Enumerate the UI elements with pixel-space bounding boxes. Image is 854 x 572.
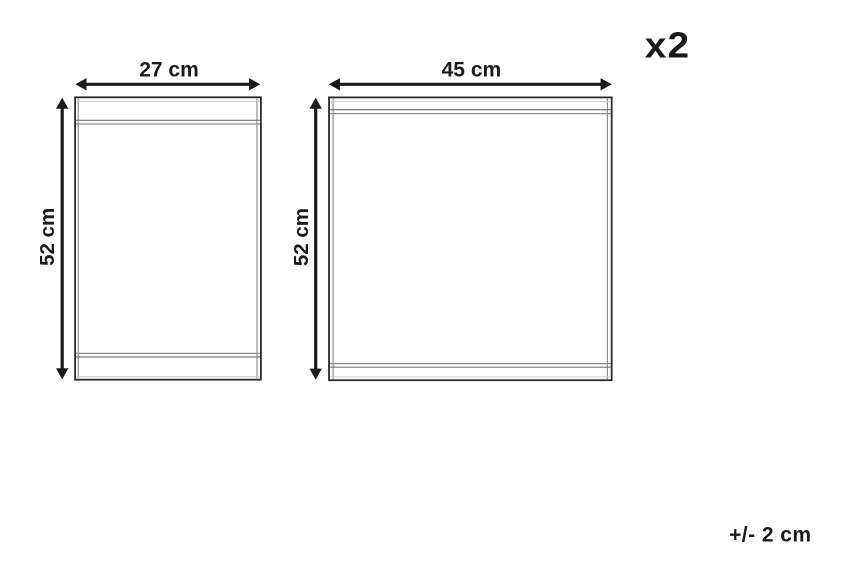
svg-text:52 cm: 52 cm: [290, 208, 313, 266]
svg-text:x2: x2: [645, 25, 690, 66]
svg-text:45 cm: 45 cm: [442, 58, 502, 81]
svg-text:+/- 2 cm: +/- 2 cm: [729, 523, 811, 546]
svg-text:52 cm: 52 cm: [36, 208, 59, 266]
svg-text:27 cm: 27 cm: [139, 59, 199, 82]
